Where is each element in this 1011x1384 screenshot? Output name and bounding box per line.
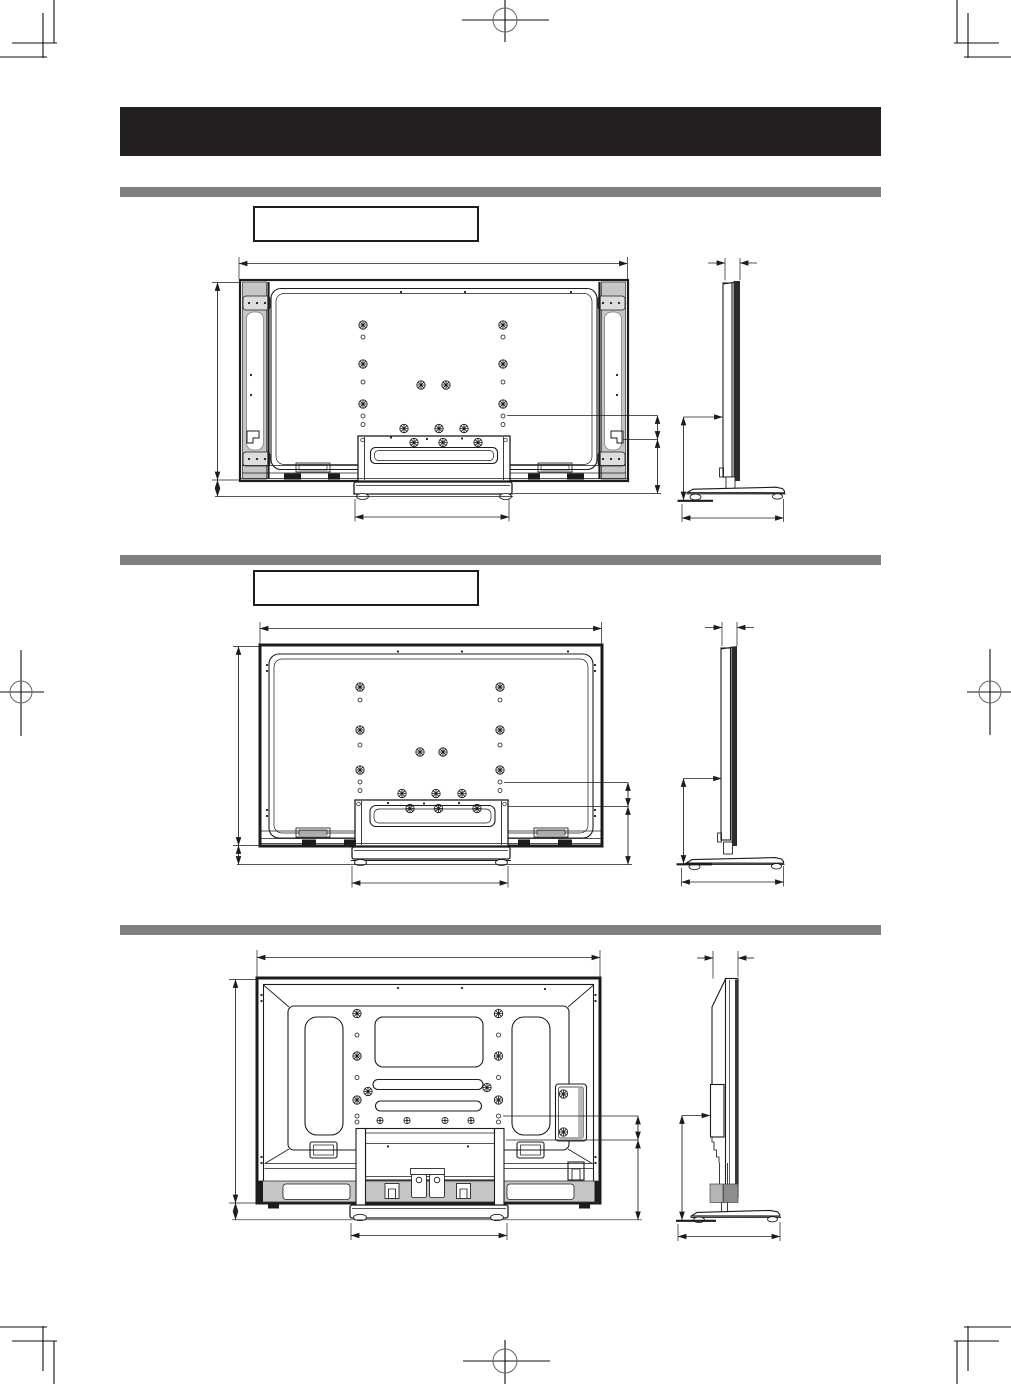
dimension-lines (682, 417, 784, 522)
stand-base (351, 847, 511, 866)
connector-panel (556, 1084, 587, 1141)
stand-base (353, 482, 513, 500)
section-2-rear-view (233, 622, 632, 888)
section-1-rear-view (212, 257, 661, 522)
crosshair-top-center (462, 0, 549, 42)
dimension-diagrams (0, 0, 1011, 1384)
section-3-side-view (676, 951, 781, 1241)
crosshair-bottom-center (463, 1340, 550, 1384)
section-3-rear-view (229, 950, 642, 1240)
section-1-side-view (678, 258, 786, 522)
section-2-side-view (677, 622, 785, 887)
crosshair-right-center (967, 649, 1011, 735)
stand-base (350, 1205, 508, 1221)
crosshair-left-center (0, 650, 44, 736)
bottom-speaker-strip (258, 1181, 600, 1202)
